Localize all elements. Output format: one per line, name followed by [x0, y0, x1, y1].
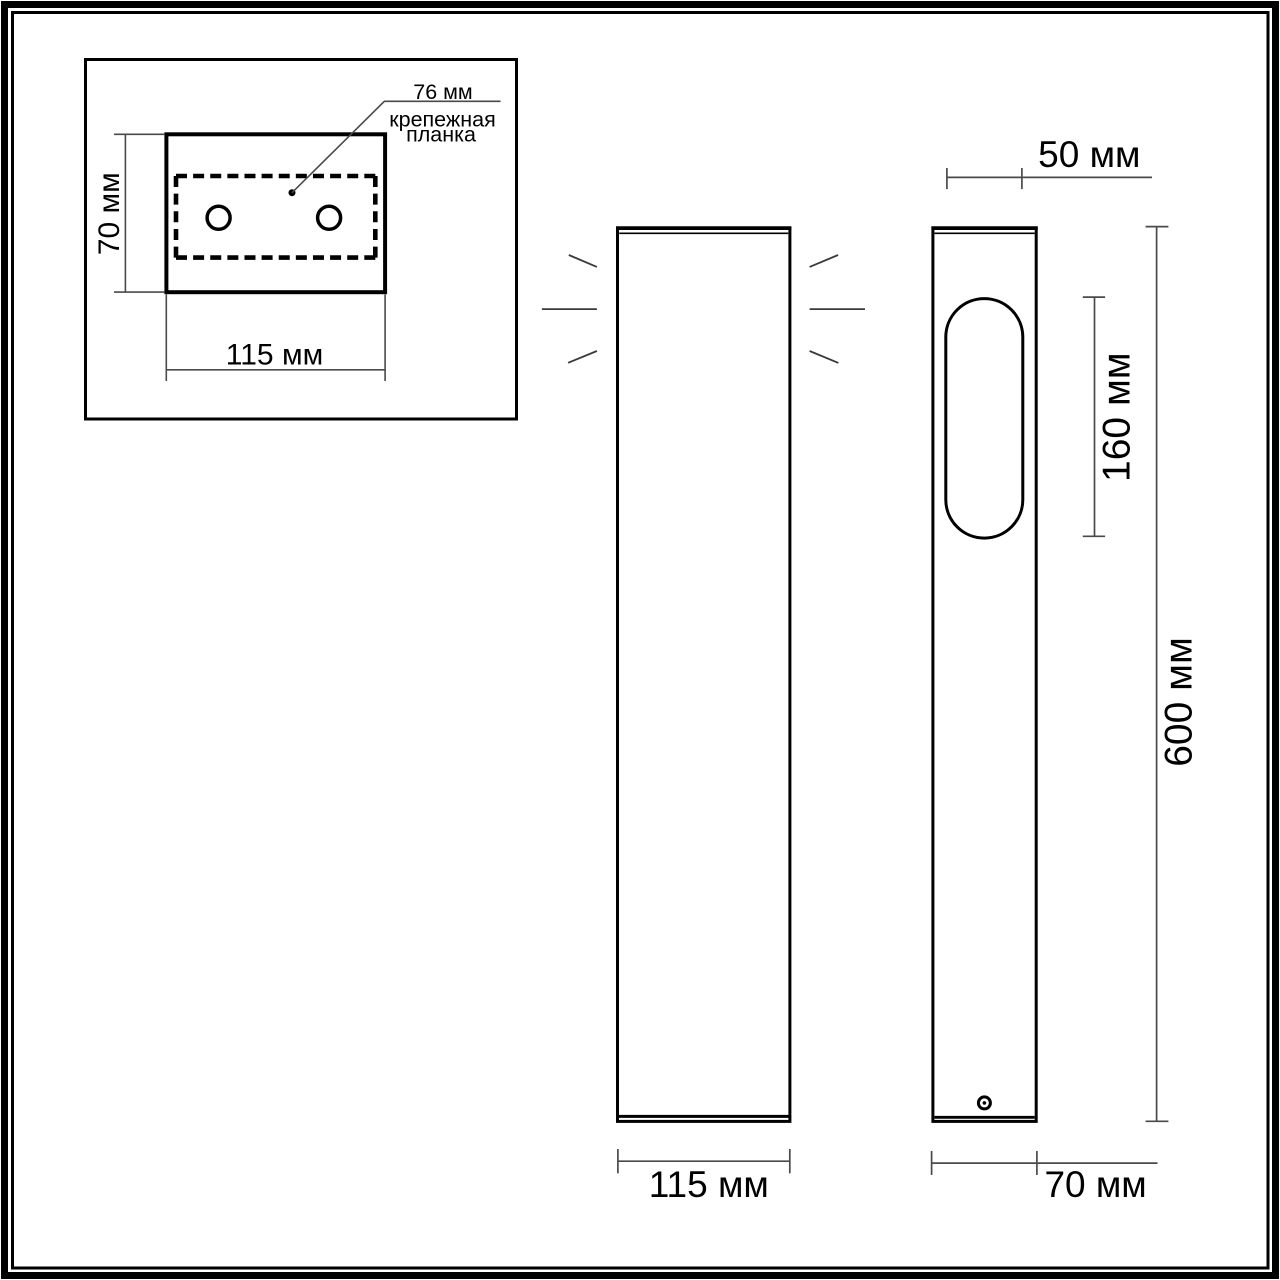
svg-text:76 мм: 76 мм: [413, 80, 472, 104]
svg-text:70 мм: 70 мм: [93, 172, 126, 255]
svg-text:планка: планка: [406, 122, 476, 146]
svg-text:160 мм: 160 мм: [1096, 352, 1139, 482]
svg-text:50 мм: 50 мм: [1038, 134, 1140, 175]
svg-text:600 мм: 600 мм: [1158, 637, 1201, 767]
svg-text:70 мм: 70 мм: [1044, 1164, 1146, 1205]
svg-text:115 мм: 115 мм: [226, 339, 323, 372]
svg-text:115 мм: 115 мм: [649, 1164, 769, 1205]
